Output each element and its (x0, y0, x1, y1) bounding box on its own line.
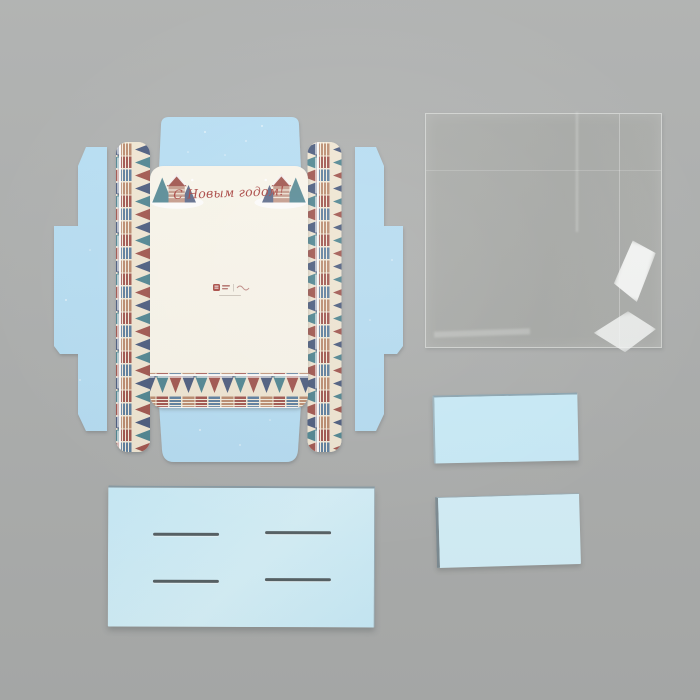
lid-bottom-border-pattern (150, 372, 308, 408)
product-photo-scene: С Новым годом! (0, 0, 700, 700)
pvc-crease (426, 170, 661, 171)
pvc-crease (619, 114, 620, 347)
blue-insert-card-upper (432, 392, 578, 463)
left-pattern-strip (116, 142, 150, 452)
pvc-glare (576, 112, 578, 232)
pvc-glare (611, 239, 658, 304)
die-cut-slot (265, 578, 331, 581)
box-left-side-flap (54, 147, 107, 431)
die-cut-slot (153, 533, 219, 536)
die-cut-slot (153, 580, 219, 583)
right-pattern-strip (308, 142, 342, 452)
box-bottom-flap (159, 404, 301, 462)
box-right-side-flap (355, 147, 403, 431)
box-base-panel-with-slots (108, 486, 375, 628)
pvc-glare (434, 328, 530, 337)
box-top-flap (159, 117, 301, 170)
blue-insert-card-lower (435, 493, 581, 568)
pvc-window-sheet (425, 113, 662, 348)
die-cut-slot (265, 531, 331, 534)
